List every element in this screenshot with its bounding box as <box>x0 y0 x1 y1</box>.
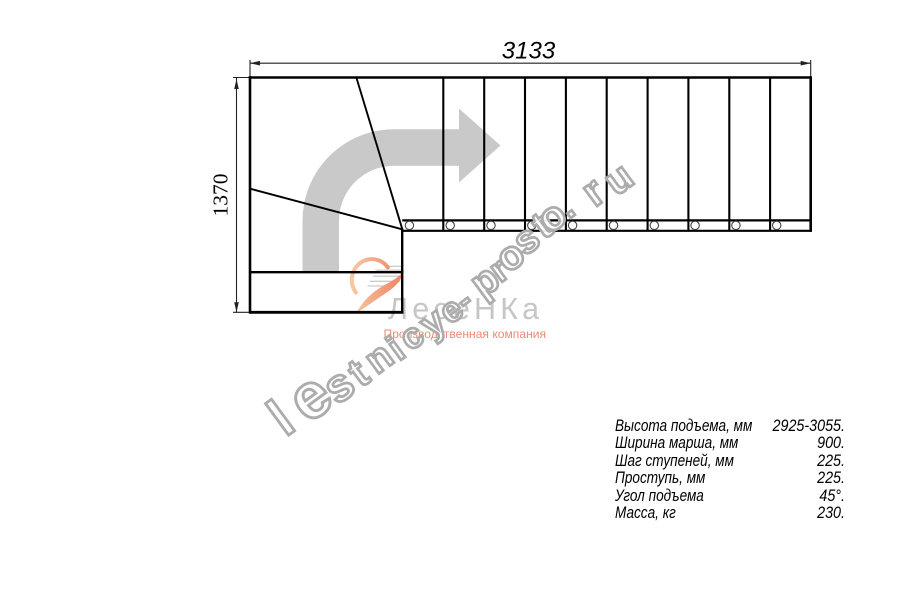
svg-text:lestnicye-prosto.ru: lestnicye-prosto.ru <box>253 136 645 451</box>
